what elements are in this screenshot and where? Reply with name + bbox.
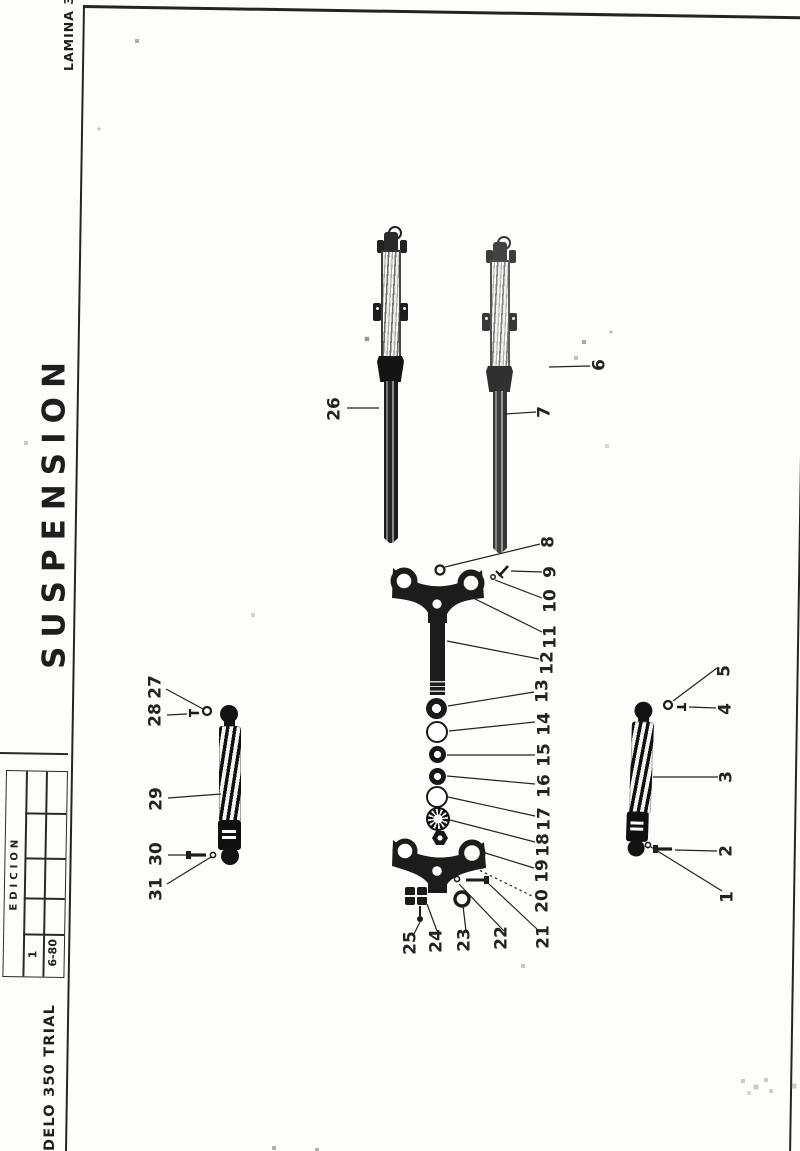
callout-29: 29 [149,787,166,811]
lower-triple-clamp [392,839,486,894]
callout-11: 11 [543,625,560,649]
callout-27: 27 [148,675,165,699]
callout-1: 1 [720,891,737,903]
callout-26: 26 [327,397,344,421]
callout-6: 6 [592,359,609,371]
callout-4: 4 [718,703,735,715]
callout-25: 25 [403,931,420,955]
callout-17: 17 [537,807,554,831]
callout-28: 28 [148,703,165,727]
callout-5: 5 [717,665,734,677]
leader-lines [166,366,722,934]
washer-27 [203,707,211,715]
callout-18: 18 [536,833,553,857]
callout-14: 14 [537,712,554,736]
callout-22: 22 [494,926,511,950]
diagram-linework [0,0,800,1151]
callout-31: 31 [149,877,166,901]
callout-24: 24 [429,929,446,953]
scanned-parts-sheet: LAMINA 3 SUSPENSION EDICION 1 6-80 MODEL… [0,0,800,1151]
callout-16: 16 [537,774,554,798]
screw-10 [491,575,495,579]
callout-20: 20 [535,889,552,913]
callout-15: 15 [537,743,554,767]
callout-2: 2 [719,845,736,857]
callout-13: 13 [535,679,552,703]
bolt-21-head [484,876,489,884]
callout-23: 23 [457,928,474,952]
screw-25-head [417,916,423,922]
washer-31 [210,852,215,857]
callout-12: 12 [540,651,557,675]
callout-21: 21 [536,925,553,949]
washer-5 [664,701,672,709]
callout-9: 9 [543,566,560,578]
scan-noise [0,0,2,2]
washer-22 [454,876,459,881]
callout-7: 7 [537,406,554,418]
washer-1 [645,842,650,847]
washer-8 [436,566,445,575]
callout-8: 8 [541,536,558,548]
upper-triple-clamp [391,568,485,624]
callout-3: 3 [719,771,736,783]
callout-30: 30 [149,842,166,866]
callout-10: 10 [543,589,560,613]
nut-23 [455,892,469,906]
callout-19: 19 [535,859,552,883]
